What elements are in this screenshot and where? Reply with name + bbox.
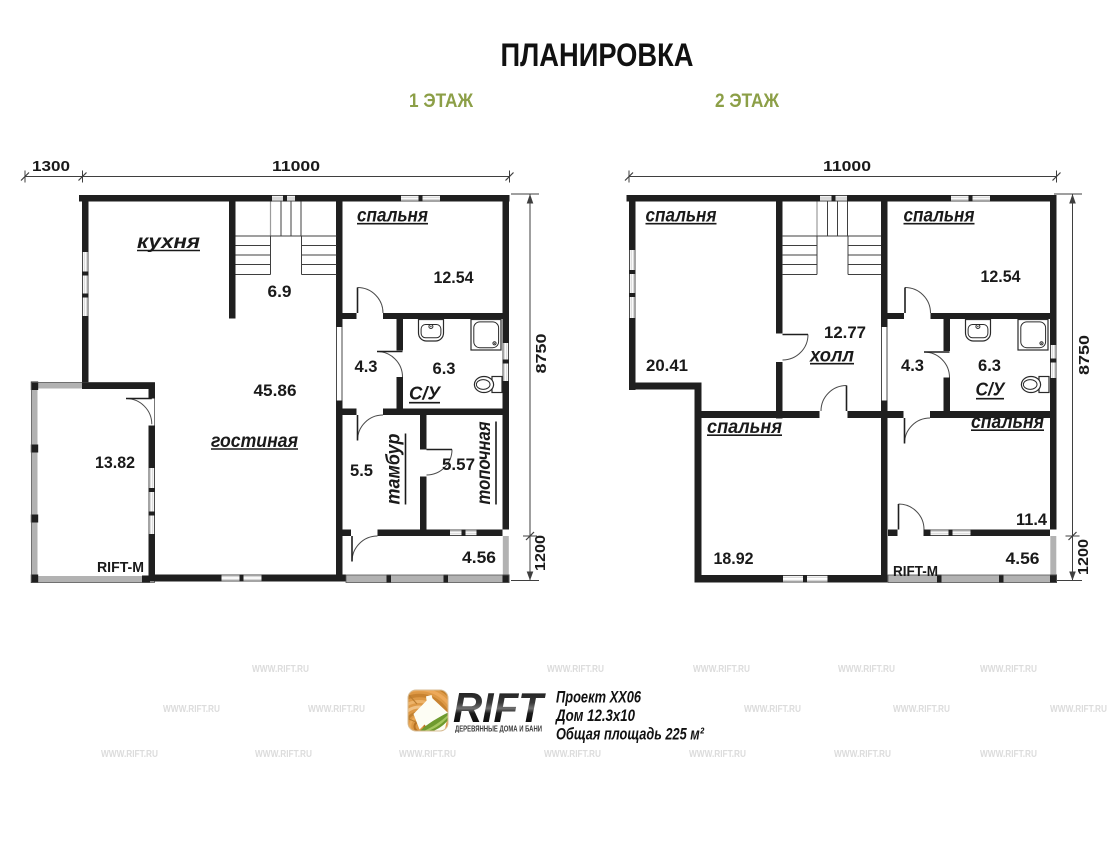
svg-text:8750: 8750 [533,334,550,374]
svg-text:13.82: 13.82 [95,453,135,472]
svg-text:WWW.RIFT.RU: WWW.RIFT.RU [980,663,1037,675]
svg-text:WWW.RIFT.RU: WWW.RIFT.RU [893,703,950,715]
svg-text:6.3: 6.3 [433,359,456,378]
svg-text:4.3: 4.3 [901,356,924,375]
svg-text:WWW.RIFT.RU: WWW.RIFT.RU [834,748,891,760]
svg-text:тамбур: тамбур [384,434,405,505]
svg-text:WWW.RIFT.RU: WWW.RIFT.RU [399,748,456,760]
svg-text:С/У: С/У [976,379,1006,400]
svg-text:WWW.RIFT.RU: WWW.RIFT.RU [693,663,750,675]
svg-text:1 ЭТАЖ: 1 ЭТАЖ [409,91,474,112]
svg-text:4.56: 4.56 [1006,549,1040,568]
svg-text:ДЕРЕВЯННЫЕ ДОМА И БАНИ: ДЕРЕВЯННЫЕ ДОМА И БАНИ [455,724,542,734]
svg-text:WWW.RIFT.RU: WWW.RIFT.RU [547,663,604,675]
svg-text:WWW.RIFT.RU: WWW.RIFT.RU [980,748,1037,760]
svg-text:11000: 11000 [272,158,320,175]
svg-text:6.3: 6.3 [978,356,1001,375]
svg-text:Проект ХХ06: Проект ХХ06 [556,688,641,707]
svg-text:RIFT-M: RIFT-M [893,564,938,580]
svg-text:WWW.RIFT.RU: WWW.RIFT.RU [163,703,220,715]
svg-text:WWW.RIFT.RU: WWW.RIFT.RU [744,703,801,715]
svg-text:WWW.RIFT.RU: WWW.RIFT.RU [252,663,309,675]
svg-text:6.9: 6.9 [268,282,292,301]
svg-text:WWW.RIFT.RU: WWW.RIFT.RU [255,748,312,760]
svg-text:1200: 1200 [1075,539,1092,575]
svg-text:20.41: 20.41 [646,356,688,375]
svg-text:WWW.RIFT.RU: WWW.RIFT.RU [1050,703,1107,715]
svg-text:11000: 11000 [823,158,871,175]
svg-text:4.3: 4.3 [355,357,378,376]
svg-text:2 ЭТАЖ: 2 ЭТАЖ [715,91,780,112]
svg-text:1200: 1200 [532,535,549,571]
svg-text:Дом 12.3х10: Дом 12.3х10 [554,706,635,725]
svg-text:5.5: 5.5 [350,461,373,480]
svg-text:WWW.RIFT.RU: WWW.RIFT.RU [689,748,746,760]
svg-text:WWW.RIFT.RU: WWW.RIFT.RU [308,703,365,715]
svg-text:11.4: 11.4 [1016,510,1048,529]
svg-text:12.77: 12.77 [824,323,866,342]
svg-text:топочная: топочная [474,422,495,505]
svg-text:5.57: 5.57 [442,455,475,474]
svg-text:12.54: 12.54 [434,268,475,287]
svg-text:ПЛАНИРОВКА: ПЛАНИРОВКА [501,37,694,73]
svg-text:18.92: 18.92 [714,549,754,568]
svg-text:4.56: 4.56 [462,548,496,567]
svg-text:RIFT-M: RIFT-M [97,560,144,576]
svg-text:45.86: 45.86 [254,381,297,400]
svg-text:WWW.RIFT.RU: WWW.RIFT.RU [838,663,895,675]
svg-text:С/У: С/У [409,383,441,404]
svg-text:12.54: 12.54 [981,267,1022,286]
svg-text:1300: 1300 [32,158,70,175]
svg-text:8750: 8750 [1076,335,1093,375]
svg-text:WWW.RIFT.RU: WWW.RIFT.RU [101,748,158,760]
svg-text:Общая площадь 225 м²: Общая площадь 225 м² [556,725,705,744]
svg-text:WWW.RIFT.RU: WWW.RIFT.RU [544,748,601,760]
